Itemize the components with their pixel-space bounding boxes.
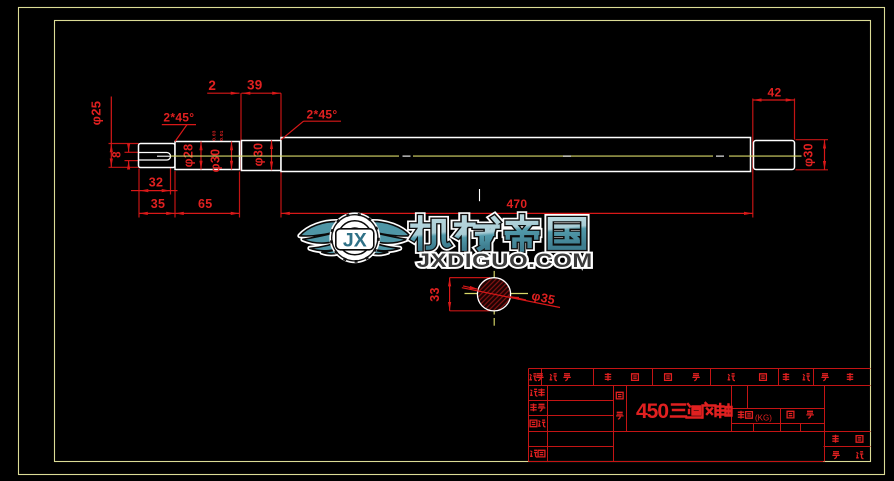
svg-text:φ30: φ30 bbox=[252, 143, 266, 167]
svg-text:0.01: 0.01 bbox=[219, 130, 225, 141]
svg-text:0.03: 0.03 bbox=[212, 130, 218, 141]
svg-text:2*45°: 2*45° bbox=[307, 108, 338, 122]
svg-text:JX: JX bbox=[343, 229, 367, 251]
svg-text:42: 42 bbox=[768, 86, 782, 100]
svg-text:2*45°: 2*45° bbox=[163, 111, 194, 125]
svg-text:470: 470 bbox=[506, 197, 527, 211]
svg-text:2: 2 bbox=[208, 78, 216, 93]
svg-text:φ30: φ30 bbox=[209, 149, 223, 173]
svg-text:φ28: φ28 bbox=[182, 144, 196, 168]
svg-text:39: 39 bbox=[247, 78, 263, 93]
svg-text:33: 33 bbox=[428, 287, 442, 302]
svg-text:32: 32 bbox=[149, 176, 164, 190]
svg-text:φ25: φ25 bbox=[89, 101, 104, 126]
svg-text:(KG): (KG) bbox=[755, 414, 772, 423]
svg-text:65: 65 bbox=[198, 197, 213, 211]
svg-text:JXDIGUO.COM: JXDIGUO.COM bbox=[417, 250, 593, 272]
svg-text:35: 35 bbox=[151, 197, 166, 211]
svg-text:φ30: φ30 bbox=[802, 143, 816, 167]
svg-text:8: 8 bbox=[111, 151, 123, 158]
svg-text:450: 450 bbox=[636, 400, 668, 423]
